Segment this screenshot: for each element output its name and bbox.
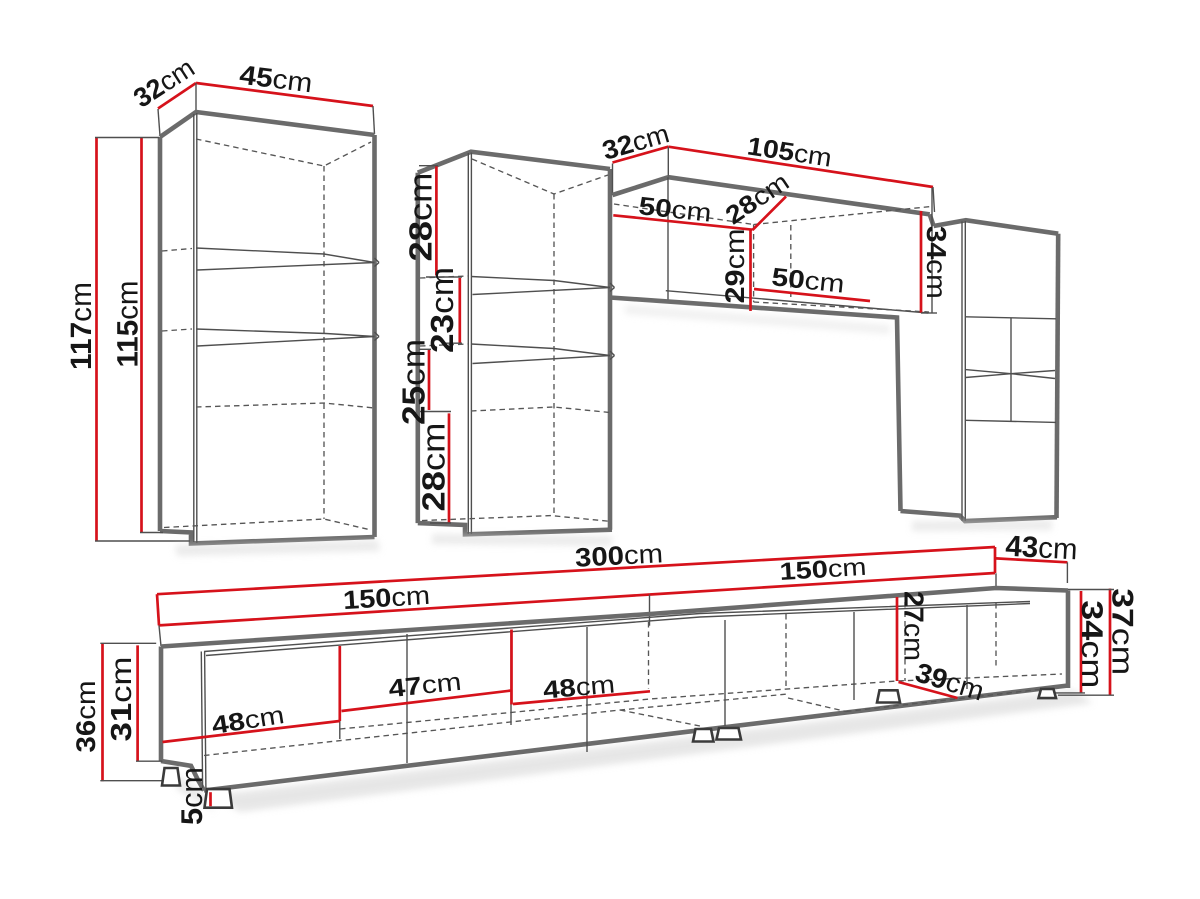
svg-text:150cm: 150cm (342, 580, 431, 615)
svg-text:36cm: 36cm (71, 681, 101, 753)
svg-text:300cm: 300cm (574, 538, 663, 573)
svg-text:28cm: 28cm (416, 423, 452, 512)
svg-text:117cm: 117cm (65, 282, 98, 370)
svg-text:150cm: 150cm (779, 553, 867, 585)
svg-text:115cm: 115cm (111, 281, 144, 368)
svg-text:43cm: 43cm (1005, 529, 1079, 566)
svg-text:31cm: 31cm (106, 657, 138, 742)
svg-text:25cm: 25cm (396, 339, 432, 425)
svg-text:27cm: 27cm (899, 591, 930, 661)
svg-text:5cm: 5cm (176, 767, 209, 825)
svg-text:34cm: 34cm (922, 226, 953, 299)
svg-text:29cm: 29cm (720, 229, 750, 304)
svg-text:37cm: 37cm (1106, 588, 1139, 675)
svg-text:28cm: 28cm (403, 173, 439, 262)
svg-text:34cm: 34cm (1076, 600, 1109, 688)
